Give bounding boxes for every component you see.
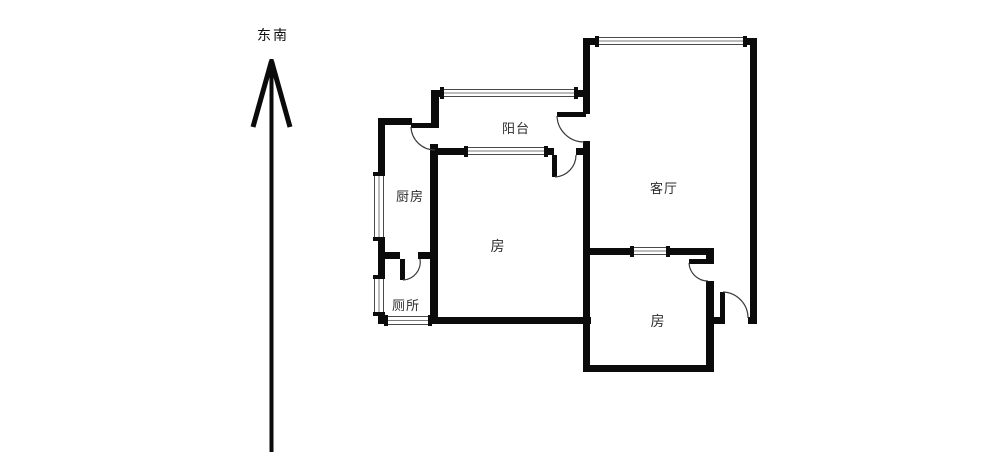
room-label-kitchen: 厨房 [396, 189, 424, 204]
window-bedroom-center [464, 146, 548, 157]
wall-kitchen-right [430, 144, 438, 324]
door-toilet [400, 259, 420, 280]
room-label-bedroom-south: 房 [651, 313, 666, 329]
wall-living-left-upper [583, 38, 590, 114]
wall-living-bottom-2 [748, 317, 757, 324]
window-living-room [595, 36, 747, 47]
compass-direction-label: 东南 [257, 27, 289, 43]
wall-balcony-bottom-1 [431, 148, 468, 155]
window-toilet-left [373, 275, 385, 316]
door-bedroom-south [689, 259, 710, 281]
wall-living-right [750, 38, 757, 324]
room-label-toilet: 厕所 [392, 298, 420, 313]
wall-left-outer-1 [378, 118, 385, 174]
wall-toilet-top-1 [378, 252, 400, 259]
door-balcony-living [557, 112, 586, 142]
wall-bottom-center [428, 317, 591, 324]
windows [373, 36, 747, 326]
window-toilet-bottom [384, 315, 432, 326]
wall-living-left-lower [583, 141, 590, 372]
doors [400, 112, 748, 318]
window-kitchen [373, 172, 385, 241]
door-entrance [720, 292, 748, 318]
room-label-living-room: 客厅 [650, 181, 678, 196]
window-balcony [440, 87, 578, 99]
compass-arrow-icon [253, 59, 290, 452]
wall-balcony-left [431, 90, 439, 128]
wall-bedroom-south-bottom [583, 365, 714, 372]
walls [378, 38, 757, 372]
room-label-bedroom-center: 房 [491, 238, 506, 254]
wall-toilet-top-2 [418, 252, 438, 259]
floorplan-page: 东南 [0, 0, 1000, 461]
door-balcony-bedroom [552, 155, 576, 177]
floorplan-drawing: 东南 [0, 0, 1000, 461]
room-label-balcony: 阳台 [502, 121, 530, 136]
wall-bedroom-south-right-2 [706, 281, 714, 372]
window-bedroom-south [630, 246, 670, 257]
